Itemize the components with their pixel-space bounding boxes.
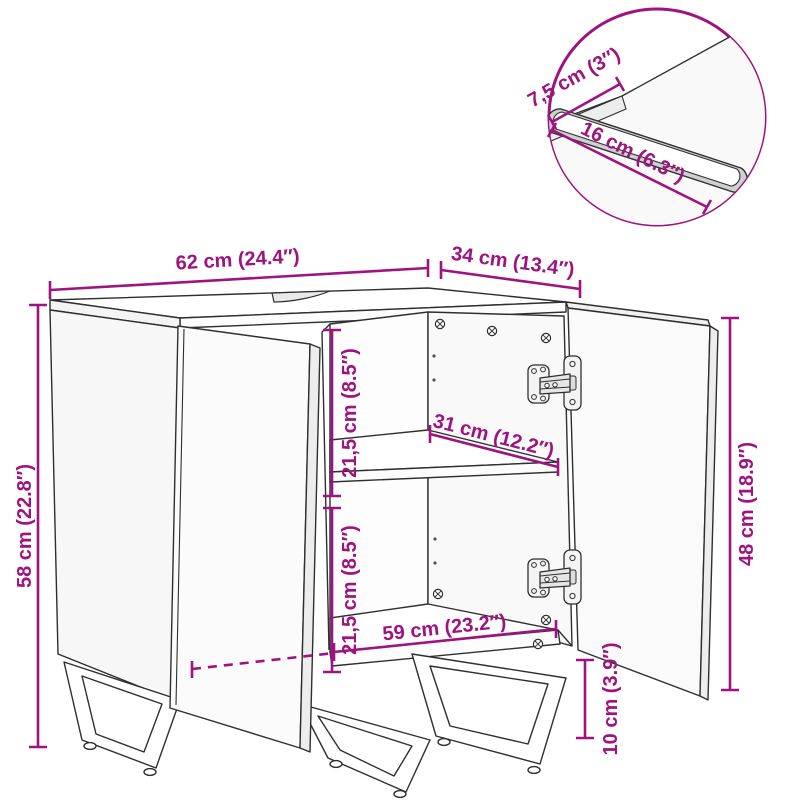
cabinet-dimension-drawing: 62 cm (24.4″) 34 cm (13.4″) 58 cm (22.8″… (0, 0, 800, 800)
leg-front-left (300, 704, 430, 797)
dim-height: 58 cm (22.8″) (14, 305, 47, 747)
left-door-open (170, 326, 320, 752)
dim-upper-inner-height: 21,5 cm (8.5″) (323, 330, 361, 496)
dimension-diagram-page: 62 cm (24.4″) 34 cm (13.4″) 58 cm (22.8″… (0, 0, 800, 800)
dim-width-label: 62 cm (24.4″) (175, 245, 300, 274)
dim-leg-height: 10 cm (3.9″) (576, 643, 622, 756)
dim-depth-label: 34 cm (13.4″) (450, 243, 576, 282)
dim-height-label: 58 cm (22.8″) (14, 464, 36, 588)
interior-right-panel (428, 312, 572, 646)
leg-right (412, 654, 566, 773)
dim-door-height: 48 cm (18.9″) (721, 318, 758, 690)
right-door-open (566, 302, 718, 700)
dim-upper-inner-height-label: 21,5 cm (8.5″) (339, 348, 361, 478)
left-side-panel (50, 310, 188, 706)
dim-depth: 34 cm (13.4″) (441, 243, 580, 298)
interior-left-edge (322, 324, 330, 650)
dim-leg-height-label: 10 cm (3.9″) (600, 643, 622, 756)
dim-lower-inner-height-label: 21,5 cm (8.5″) (339, 525, 361, 655)
dim-door-height-label: 48 cm (18.9″) (736, 442, 758, 566)
